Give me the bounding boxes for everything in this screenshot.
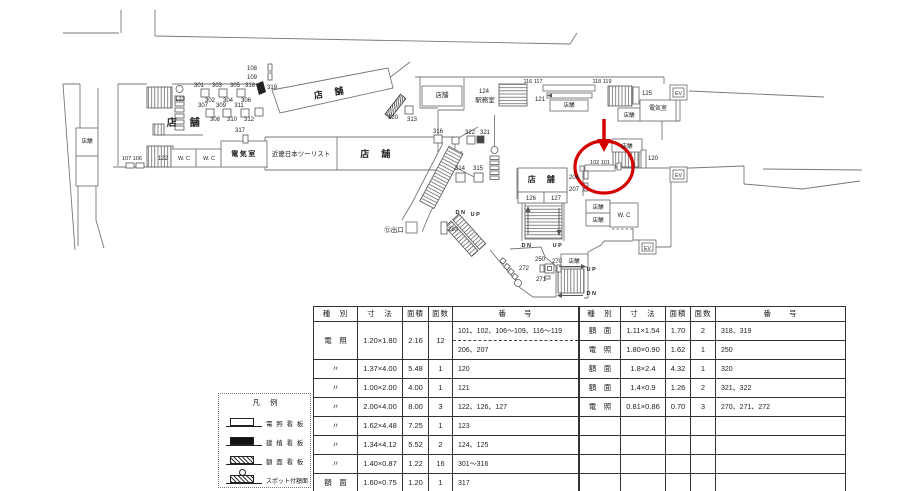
plan-label: 店 舗 [167, 116, 202, 129]
left-table-cell: 4.00 [403, 379, 429, 398]
right-table-cell [621, 417, 666, 436]
plan-label: 店 舗 [360, 148, 392, 159]
legend-item: 額 面 看 板 [226, 447, 308, 466]
plan-label: 近畿日本ツーリスト [272, 149, 331, 158]
left-table-cell: 120 [453, 360, 579, 379]
left-table-cell: 1.00×2.00 [358, 379, 403, 398]
plan-label: 207 [569, 187, 580, 193]
right-table-row-2: 額 面1.8×2.44.321320 [580, 360, 846, 379]
plan-label: 電気室 [649, 104, 667, 112]
right-table-cell [580, 436, 621, 455]
plan-label: 116 117 [523, 79, 542, 85]
right-table-cell [716, 455, 846, 474]
plan-label: W. C [618, 213, 632, 219]
signboard-tables: 種 別寸 法面積面数番 号電 照1.20×1.802.1612101、102、1… [313, 306, 846, 491]
right-table-row-7 [580, 455, 846, 474]
right-table-cell [666, 436, 691, 455]
right-table-cell: 1 [691, 360, 716, 379]
plan-label: 123 [175, 97, 186, 103]
plan-label: 270 [552, 259, 563, 265]
plan-label: 307 [198, 103, 209, 109]
plan-label: 272 [519, 266, 530, 272]
stair-office [499, 84, 527, 106]
left-table-row-6: 〃1.40×0.871.2216301〜316 [314, 455, 579, 474]
right-table-row-6 [580, 436, 846, 455]
right-table-cell: 1 [691, 341, 716, 360]
left-table-cell: 206、207 [453, 341, 579, 360]
left-table-cell: 7.25 [403, 417, 429, 436]
plan-label: UP [471, 212, 482, 218]
left-table-row-2: 〃1.00×2.004.001121 [314, 379, 579, 398]
left-table-cell: 〃 [314, 455, 358, 474]
stair-118 [608, 86, 632, 106]
plan-label: 283 [448, 227, 459, 233]
right-table-header-1: 寸 法 [621, 307, 666, 322]
left-table-row-5: 〃1.34×4.125.522124、125 [314, 436, 579, 455]
plan-label: 122 [158, 156, 169, 162]
right-table-cell [716, 436, 846, 455]
plan-label: 308 [210, 117, 221, 123]
left-table-cell: 121 [453, 379, 579, 398]
stair-123 [147, 87, 172, 108]
plan-label: 311 [234, 103, 244, 109]
right-table-header-4: 番 号 [716, 307, 846, 322]
right-table-cell: 270、271、272 [716, 398, 846, 417]
left-table-cell: 16 [429, 455, 453, 474]
plan-label: 250 [535, 257, 546, 263]
plan-label: 121 [535, 97, 546, 103]
plan-label: 314 [455, 166, 466, 172]
left-table-cell: 123 [453, 417, 579, 436]
right-table-cell: 額 面 [580, 360, 621, 379]
gakumen-symbol [226, 452, 262, 466]
legend-label: 額 面 看 板 [266, 456, 304, 466]
stair-small [153, 124, 164, 135]
plan-label: 店舗 [436, 90, 450, 99]
plan-label: 120 [648, 156, 659, 162]
right-table-cell [691, 417, 716, 436]
left-table-cell: 1.60×0.75 [358, 474, 403, 491]
right-table-cell: 1.62 [666, 341, 691, 360]
station-plan-page: 1081093183193013033053023043063073093113… [0, 0, 919, 491]
densho-symbol [226, 414, 262, 428]
left-table-cell: 317 [453, 474, 579, 491]
left-table-row-7: 額 面1.60×0.751.201317 [314, 474, 579, 491]
spot-symbol [226, 471, 262, 485]
right-table-header-0: 種 別 [580, 307, 621, 322]
plan-label: 店舗 [623, 111, 635, 119]
plan-label: 309 [216, 103, 227, 109]
left-table-row-1: 〃1.37×4.005.481120 [314, 360, 579, 379]
right-table-row-8 [580, 474, 846, 491]
plan-label: 店舗 [592, 203, 604, 211]
plan-label: 駅務室 [475, 95, 495, 104]
right-table-cell [621, 455, 666, 474]
legend-item: スポット付額面 [226, 466, 308, 485]
plan-label: 206 [569, 175, 580, 181]
right-table-row-5 [580, 417, 846, 436]
plan-label: 313 [407, 117, 418, 123]
plan-label: 118 119 [592, 79, 611, 85]
left-table-cell: 1.34×4.12 [358, 436, 403, 455]
plan-label: W. C [203, 156, 215, 162]
right-table-cell: 320 [716, 360, 846, 379]
plan-label: 321 [480, 130, 491, 136]
plan-label: 320 [388, 115, 399, 121]
left-table-cell: 1.20 [403, 474, 429, 491]
right-table-cell [716, 474, 846, 491]
left-table-cell: 301〜316 [453, 455, 579, 474]
plan-label: 102 101 [590, 160, 610, 166]
plan-label: 316 [433, 129, 444, 135]
right-table-cell [666, 417, 691, 436]
plan-label: 126 [526, 196, 537, 202]
left-table-cell: 8.00 [403, 398, 429, 417]
left-table-cell: 1.37×4.00 [358, 360, 403, 379]
plan-label: 店舗 [568, 257, 580, 265]
left-table-cell: 1.22 [403, 455, 429, 474]
plan-label: 店舗 [563, 101, 575, 109]
left-table-cell: 1.20×1.80 [358, 322, 403, 360]
plan-label: EV [675, 173, 682, 179]
plan-label: 303 [212, 83, 223, 89]
left-table-cell: 1 [429, 379, 453, 398]
right-table-cell: 0.70 [666, 398, 691, 417]
sign-318-mark [256, 81, 266, 95]
right-table-row-3: 額 面1.4×0.91.262321、322 [580, 379, 846, 398]
left-table-row-4: 〃1.62×4.487.251123 [314, 417, 579, 436]
plan-label: 310 [227, 117, 238, 123]
right-table-cell [716, 417, 846, 436]
plan-label: 107 106 [122, 156, 142, 162]
right-table-row-4: 電 照0.81×0.860.703270、271、272 [580, 398, 846, 417]
plan-label: 319 [267, 85, 278, 91]
legend-item: 建 植 看 板 [226, 428, 308, 447]
stair-270 [558, 269, 584, 293]
plan-label: 109 [247, 75, 258, 81]
right-table-cell: 1.4×0.9 [621, 379, 666, 398]
right-table-cell: 1.11×1.54 [621, 322, 666, 341]
left-table-cell: 2.00×4.00 [358, 398, 403, 417]
left-table-cell: 122、126、127 [453, 398, 579, 417]
left-table-cell: 2.16 [403, 322, 429, 360]
right-table-cell [580, 455, 621, 474]
right-table-cell [691, 436, 716, 455]
right-table-cell: 額 面 [580, 322, 621, 341]
right-table-cell: 2 [691, 379, 716, 398]
left-table-cell: 124、125 [453, 436, 579, 455]
plan-label: DN [587, 291, 598, 297]
legend-label: 建 植 看 板 [266, 437, 304, 447]
signboard-table-left: 種 別寸 法面積面数番 号電 照1.20×1.802.1612101、102、1… [313, 306, 579, 491]
plan-label: 店舗 [621, 142, 633, 150]
kenshoku-symbol [226, 433, 262, 447]
right-table-cell [691, 455, 716, 474]
plan-label: 312 [244, 117, 255, 123]
left-table-cell: 2 [429, 436, 453, 455]
plan-label: 322 [465, 130, 476, 136]
plan-label: DN [456, 210, 467, 216]
legend-item: 電 照 看 板 [226, 409, 308, 428]
left-table-cell: 〃 [314, 417, 358, 436]
left-table-header-1: 寸 法 [358, 307, 403, 322]
right-table-cell: 1.26 [666, 379, 691, 398]
left-table-cell: 〃 [314, 398, 358, 417]
right-table-cell: 0.81×0.86 [621, 398, 666, 417]
legend-label: 電 照 看 板 [266, 418, 304, 428]
left-table-cell: 1.40×0.87 [358, 455, 403, 474]
plan-label: 317 [235, 128, 246, 134]
plan-label: 124 [479, 89, 490, 95]
left-table-header-3: 面数 [429, 307, 453, 322]
plan-label: 店舗 [592, 216, 604, 224]
left-table-header-0: 種 別 [314, 307, 358, 322]
left-table-header-2: 面積 [403, 307, 429, 322]
right-table-cell [621, 474, 666, 491]
plan-label: 318 [245, 83, 256, 89]
plan-label: EV [675, 91, 682, 97]
left-table-cell: 電 照 [314, 322, 358, 360]
right-table-row-1: 電 照1.80×0.901.621250 [580, 341, 846, 360]
plan-label: 301 [194, 83, 205, 89]
right-table-cell: 2 [691, 322, 716, 341]
escalator-283 [445, 214, 486, 256]
left-table-cell: 1.62×4.48 [358, 417, 403, 436]
plan-label: ⑫出口 [384, 225, 404, 234]
left-table-cell: 〃 [314, 436, 358, 455]
right-table-cell: 250 [716, 341, 846, 360]
plan-label: 305 [230, 83, 241, 89]
station-floor-plan: 1081093183193013033053023043063073093113… [0, 0, 919, 305]
legend-title: 凡 例 [226, 397, 308, 408]
right-table-cell: 3 [691, 398, 716, 417]
plan-label: 店 舗 [528, 174, 557, 184]
left-table-cell: 12 [429, 322, 453, 360]
right-table-cell: 1.80×0.90 [621, 341, 666, 360]
legend-label: スポット付額面 [266, 476, 308, 485]
left-table-cell: 101、102、106〜109、116〜119 [453, 322, 579, 341]
plan-label: 271 [536, 277, 547, 283]
plan-label: 店舗 [81, 137, 93, 145]
plan-label: UP [553, 243, 564, 249]
plan-label: 315 [473, 166, 484, 172]
right-table-cell: 額 面 [580, 379, 621, 398]
right-table-cell: 1.8×2.4 [621, 360, 666, 379]
right-table-cell [666, 474, 691, 491]
right-table-cell [666, 455, 691, 474]
left-table-row-3: 〃2.00×4.008.003122、126、127 [314, 398, 579, 417]
left-table-cell: 〃 [314, 379, 358, 398]
left-table-cell: 1 [429, 417, 453, 436]
plan-label: EV [644, 246, 651, 252]
left-table-cell: 額 面 [314, 474, 358, 491]
plan-label: 108 [247, 66, 258, 72]
left-table-cell: 5.48 [403, 360, 429, 379]
right-table-cell [621, 436, 666, 455]
left-table-cell: 1 [429, 360, 453, 379]
right-table-cell: 電 照 [580, 398, 621, 417]
right-table-header-3: 面数 [691, 307, 716, 322]
left-table-cell: 1 [429, 474, 453, 491]
plan-label: 電気室 [231, 149, 257, 158]
plan-label: 125 [642, 91, 653, 97]
plan-label: UP [587, 267, 598, 273]
signboard-table-right: 種 別寸 法面積面数番 号額 面1.11×1.541.702318、319電 照… [579, 306, 846, 491]
left-table-cell: 3 [429, 398, 453, 417]
plan-label: W. C [178, 156, 190, 162]
plan-label: 127 [551, 196, 562, 202]
right-table-row-0: 額 面1.11×1.541.702318、319 [580, 322, 846, 341]
right-table-cell: 電 照 [580, 341, 621, 360]
sign-321-mark [477, 136, 484, 143]
left-table-row-0: 電 照1.20×1.802.1612101、102、106〜109、116〜11… [314, 322, 579, 341]
left-table-cell: 〃 [314, 360, 358, 379]
left-table-cell: 5.52 [403, 436, 429, 455]
right-table-cell: 4.32 [666, 360, 691, 379]
right-table-cell: 318、319 [716, 322, 846, 341]
right-table-cell: 1.70 [666, 322, 691, 341]
right-table-header-2: 面積 [666, 307, 691, 322]
right-table-cell: 321、322 [716, 379, 846, 398]
right-table-cell [691, 474, 716, 491]
plan-label: DN [522, 243, 533, 249]
escalator-center [525, 203, 562, 239]
right-table-cell [580, 417, 621, 436]
left-table-header-4: 番 号 [453, 307, 579, 322]
legend-box: 凡 例 電 照 看 板建 植 看 板額 面 看 板スポット付額面 [218, 393, 311, 488]
right-table-cell [580, 474, 621, 491]
